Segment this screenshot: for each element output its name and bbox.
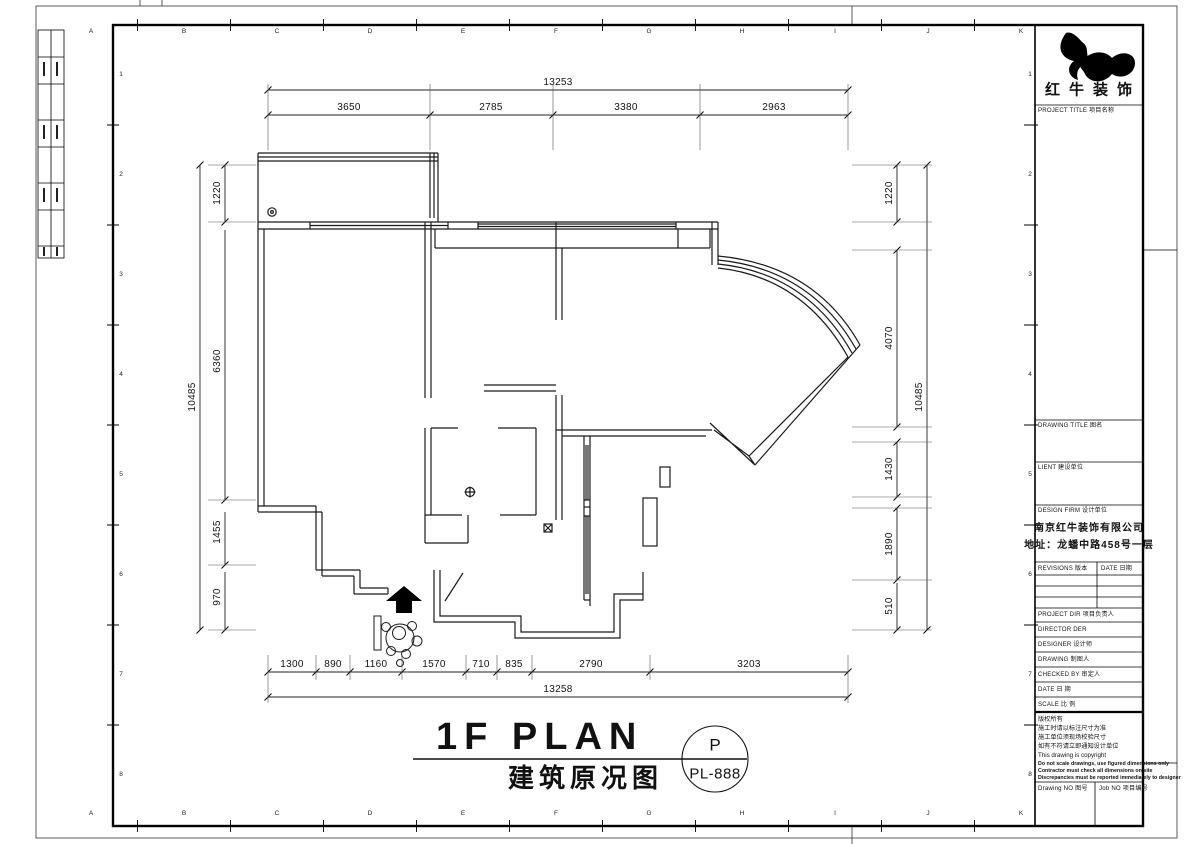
grid-row-label: 8 — [119, 772, 123, 779]
grid-col-label: J — [926, 29, 929, 36]
grid-row-label: 1 — [1028, 72, 1032, 79]
tb-drawing-title: DRAWING TITLE 图名 — [1038, 423, 1102, 429]
grid-col-label: H — [740, 29, 745, 36]
floor-plan-walls — [258, 153, 860, 638]
drawing-sheet: A B C D E F G H I J K A B C D E F G H I … — [0, 0, 1200, 844]
tb-date-col: DATE 日期 — [1101, 566, 1132, 572]
grid-col-label: C — [275, 811, 280, 818]
grid-col-label: E — [461, 29, 465, 36]
grid-row-label: 5 — [119, 472, 123, 479]
tb-drawing: DRAWING 制图人 — [1038, 657, 1089, 663]
grid-col-label: F — [554, 29, 558, 36]
grid-row-label: 8 — [1028, 772, 1032, 779]
tb-director: DIRECTOR DER — [1038, 627, 1087, 633]
grid-col-label: J — [926, 811, 929, 818]
dim-left-total: 10485 — [188, 382, 198, 411]
grid-row-label: 7 — [119, 672, 123, 679]
grid-row-label: 4 — [119, 372, 123, 379]
grid-col-label: A — [89, 811, 93, 818]
grid-col-label: E — [461, 811, 465, 818]
grid-col-label: B — [182, 29, 186, 36]
drawing-bubble-number: PL-888 — [689, 767, 740, 782]
dim-right-seg: 1430 — [885, 457, 895, 480]
tb-note: 施工单位须现场校验尺寸 — [1038, 734, 1106, 743]
grid-col-label: G — [646, 811, 651, 818]
tb-design-firm: DESIGN FIRM 设计单位 — [1038, 508, 1107, 514]
tb-scale: SCALE 比 例 — [1038, 702, 1075, 708]
grid-col-label: C — [275, 29, 280, 36]
dim-top-seg: 2963 — [762, 103, 785, 113]
grid-row-label: 4 — [1028, 372, 1032, 379]
tb-note-bold: Discrepancies must be reported immediate… — [1038, 775, 1181, 782]
dim-top-seg: 3380 — [614, 103, 637, 113]
grid-row-label: 3 — [119, 272, 123, 279]
grid-col-label: H — [740, 811, 745, 818]
dim-right-seg: 510 — [885, 597, 895, 615]
logo-text: 红牛装饰 — [1045, 83, 1141, 98]
grid-col-label: D — [368, 29, 373, 36]
dim-bottom-seg: 1300 — [280, 660, 303, 670]
grid-row-label: 6 — [119, 572, 123, 579]
tb-designer: DESIGNER 设计师 — [1038, 642, 1092, 648]
dim-top-seg: 2785 — [479, 103, 502, 113]
dim-bottom-seg: 890 — [324, 660, 342, 670]
entry-symbols — [374, 586, 422, 667]
dim-left-seg: 1220 — [213, 181, 223, 204]
dim-right-seg: 1890 — [885, 532, 895, 555]
grid-col-label: F — [554, 811, 558, 818]
grid-col-label: G — [646, 29, 651, 36]
grid-col-label: K — [1019, 811, 1023, 818]
plan-subtitle: 建筑原况图 — [508, 765, 663, 791]
dim-left-seg: 1455 — [213, 520, 223, 543]
dim-left-seg: 6360 — [213, 349, 223, 372]
drawing-bubble-letter: P — [709, 737, 720, 754]
tb-company: 南京红牛装饰有限公司 — [1034, 524, 1144, 534]
dim-top-seg: 3650 — [337, 103, 360, 113]
dim-bottom-seg: 1160 — [365, 660, 388, 670]
dim-right-seg: 4070 — [885, 326, 895, 349]
grid-row-label: 2 — [1028, 172, 1032, 179]
tb-checked-by: CHECKED BY 审定人 — [1038, 672, 1100, 678]
tb-drawing-no: Drawing NO 图号 — [1038, 786, 1088, 792]
grid-col-label: D — [368, 811, 373, 818]
tb-note: This drawing is copyright — [1038, 752, 1106, 761]
fold-table-marks — [43, 62, 58, 256]
tb-note: 如有不符请立即通知设计单位 — [1038, 743, 1118, 752]
logo-mark — [1060, 33, 1135, 82]
dim-top-total: 13253 — [543, 78, 572, 88]
tb-client: LIENT 建设单位 — [1038, 465, 1083, 471]
tb-note: 版权所有 — [1038, 716, 1063, 725]
plan-title: 1F PLAN — [436, 718, 643, 756]
dimension-ticks — [197, 87, 931, 701]
dim-bottom-seg: 3203 — [737, 660, 760, 670]
dim-bottom-seg: 2790 — [579, 660, 602, 670]
grid-col-label: I — [834, 29, 836, 36]
grid-row-label: 3 — [1028, 272, 1032, 279]
grid-col-label: B — [182, 811, 186, 818]
grid-row-label: 6 — [1028, 572, 1032, 579]
tb-revisions: REVISIONS 版本 — [1038, 566, 1087, 572]
grid-col-label: A — [89, 29, 93, 36]
tb-date: DATE 日 期 — [1038, 687, 1071, 693]
fold-table — [38, 30, 64, 258]
tb-project-title: PROJECT TITLE 项目名称 — [1038, 108, 1114, 114]
dim-right-total: 10485 — [915, 382, 925, 411]
dim-left-seg: 970 — [213, 588, 223, 606]
tb-note: 施工时请以标注尺寸为准 — [1038, 725, 1106, 734]
grid-row-label: 1 — [119, 72, 123, 79]
grid-col-label: I — [834, 811, 836, 818]
dim-right-seg: 1220 — [885, 181, 895, 204]
grid-row-label: 2 — [119, 172, 123, 179]
dim-bottom-seg: 1570 — [422, 660, 445, 670]
grid-col-label: K — [1019, 29, 1023, 36]
dim-bottom-seg: 835 — [505, 660, 523, 670]
dim-bottom-seg: 710 — [472, 660, 490, 670]
tb-job-no: Job NO 项目编号 — [1099, 786, 1148, 792]
grid-row-label: 7 — [1028, 672, 1032, 679]
tb-project-dir: PROJECT DIR 项目负责人 — [1038, 612, 1114, 618]
tb-address: 地址：龙蟠中路458号一层 — [1024, 541, 1154, 551]
dim-bottom-total: 13258 — [543, 685, 572, 695]
frame — [113, 25, 1177, 826]
extension-lines — [208, 84, 932, 703]
grid-row-label: 5 — [1028, 472, 1032, 479]
